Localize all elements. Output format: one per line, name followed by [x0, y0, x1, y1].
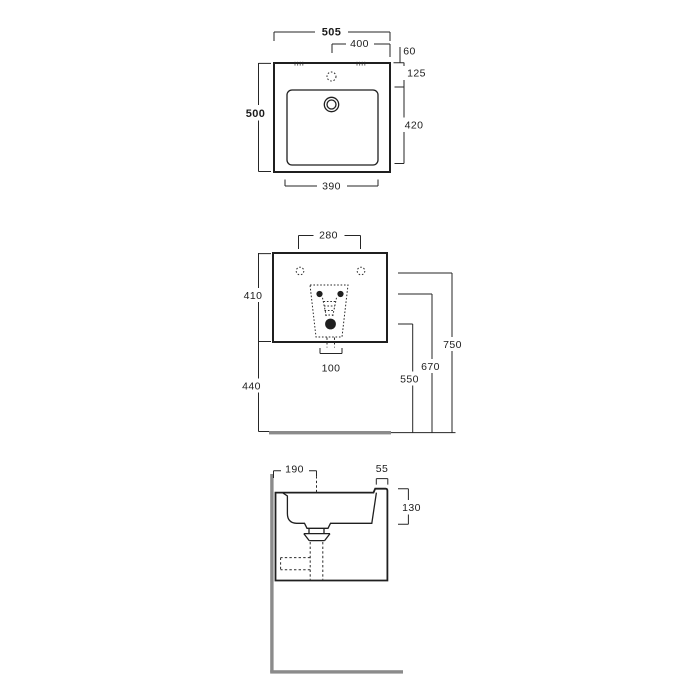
dim-drain-cutout	[320, 348, 342, 354]
label-overall-width: 505	[315, 25, 348, 39]
svg-text:390: 390	[322, 180, 341, 192]
svg-text:400: 400	[350, 38, 369, 50]
label-basin-depth: 130	[399, 500, 424, 515]
svg-text:125: 125	[407, 68, 426, 80]
label-drain-cutout: 100	[322, 362, 341, 374]
trap-bolt-left	[316, 291, 322, 297]
label-body-to-floor: 440	[240, 379, 265, 393]
label-tap-hole-spacing: 400	[346, 38, 374, 51]
trap-bolt-right	[337, 291, 343, 297]
svg-text:550: 550	[400, 373, 419, 385]
label-body-height: 410	[241, 288, 266, 302]
label-wall-to-drain: 190	[281, 462, 309, 476]
floor-line-front	[269, 431, 391, 434]
label-height-750: 750	[440, 337, 466, 351]
fixing-hole-right	[357, 267, 365, 275]
label-basin-length: 420	[403, 118, 427, 133]
svg-text:60: 60	[403, 46, 415, 58]
label-overall-depth: 500	[242, 105, 271, 121]
svg-text:55: 55	[376, 463, 388, 475]
label-basin-width: 390	[317, 179, 347, 193]
svg-text:100: 100	[322, 362, 341, 374]
washbasin-dimension-drawing: 505 400 60 125 420 500 390	[0, 0, 700, 700]
label-edge-to-basin: 125	[404, 66, 431, 80]
dim-rim-lip	[376, 479, 388, 485]
top-view: 505 400 60 125 420 500 390	[242, 25, 431, 193]
technical-drawing-page: 505 400 60 125 420 500 390	[0, 0, 700, 700]
drain-hole-front	[325, 319, 336, 330]
label-height-670: 670	[418, 359, 444, 373]
svg-text:420: 420	[405, 120, 424, 132]
dim-edge-to-basin	[395, 63, 405, 87]
wall-line	[270, 474, 273, 673]
svg-text:440: 440	[242, 380, 261, 392]
svg-text:750: 750	[443, 339, 462, 351]
svg-text:410: 410	[244, 290, 263, 302]
dim-height-750	[398, 273, 452, 433]
sink-outline-top	[274, 63, 390, 172]
svg-text:190: 190	[285, 463, 304, 475]
drain-hole-top	[324, 97, 338, 111]
label-rim-lip: 55	[376, 463, 388, 475]
label-height-550: 550	[397, 372, 423, 386]
trap-funnel-hidden-lines	[323, 298, 337, 317]
dim-body-height-and-floor	[259, 253, 272, 432]
fixing-hole-left	[296, 267, 304, 275]
tap-hole-dashed-circle	[327, 72, 336, 81]
svg-text:130: 130	[402, 502, 421, 514]
svg-text:670: 670	[421, 361, 440, 373]
side-view: 190 55 130	[270, 462, 424, 674]
floor-line-side	[270, 670, 403, 673]
svg-text:500: 500	[246, 108, 266, 120]
label-fixing-hole-spacing: 280	[314, 228, 345, 242]
svg-text:505: 505	[322, 27, 342, 39]
sink-outline-side	[276, 489, 388, 581]
svg-text:280: 280	[319, 229, 338, 241]
label-edge-to-tap: 60	[403, 46, 415, 58]
front-view: 280 410 440 100 550 670 750	[240, 228, 467, 435]
basin-outline-top	[287, 90, 378, 165]
